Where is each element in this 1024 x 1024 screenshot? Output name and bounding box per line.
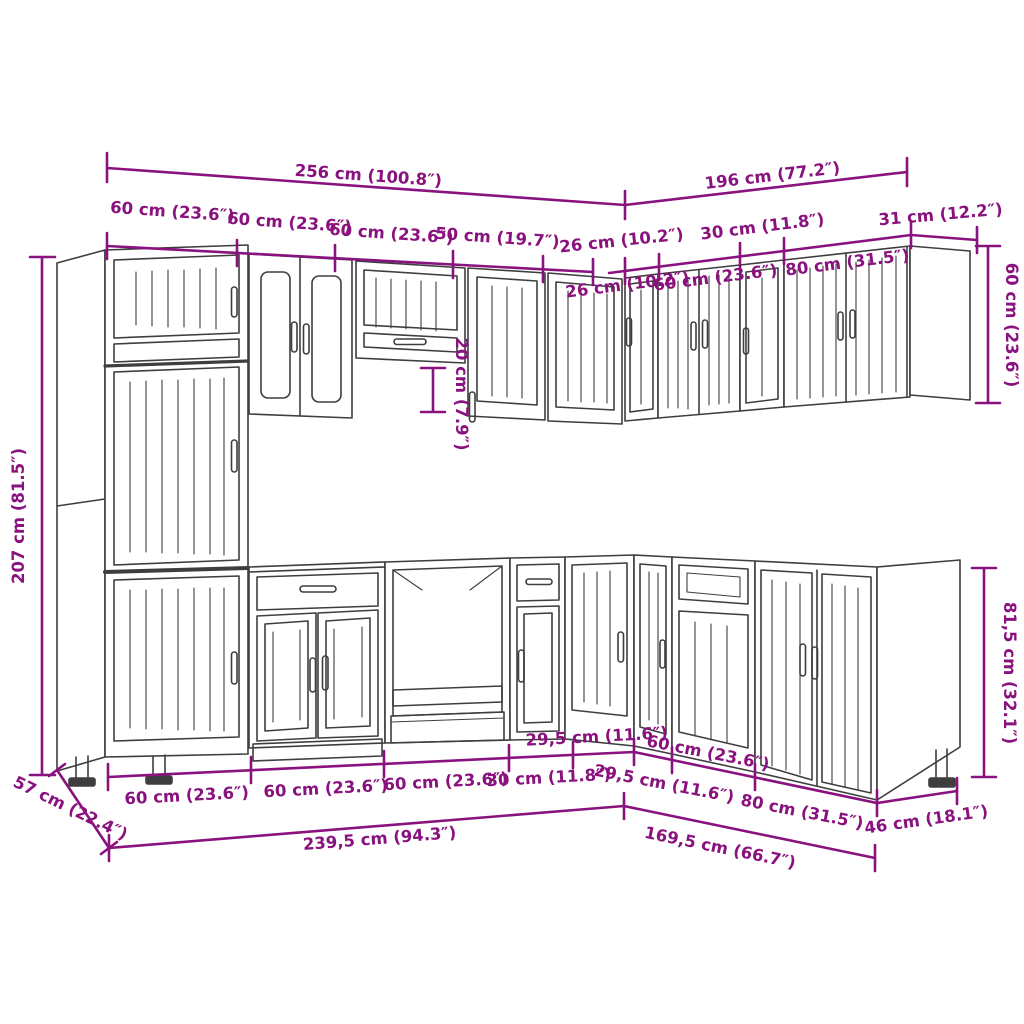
dim-line-wall-height <box>976 246 1000 403</box>
base-cabinet-drawer <box>249 562 385 748</box>
tall-cabinet <box>57 245 248 786</box>
wall-cabinets-left <box>249 254 622 424</box>
dim-label-total-bottom-right: 169,5 cm (66.7″) <box>643 823 798 872</box>
dim-label-tall-height: 207 cm (81.5″) <box>9 448 28 584</box>
dim-label-total-bottom-left: 239,5 cm (94.3″) <box>302 823 457 854</box>
base-cabinet-80 <box>755 561 877 800</box>
dim-label-bottom-60b: 60 cm (23.6″) <box>263 776 388 801</box>
dim-label-top-50: 50 cm (19.7″) <box>435 224 561 252</box>
dim-line-base-height <box>972 568 996 777</box>
dim-label-wall-height: 60 cm (23.6″) <box>1002 263 1021 388</box>
dim-label-base-height: 81,5 cm (32.1″) <box>1000 602 1019 744</box>
dim-label-top-60a: 60 cm (23.6″) <box>110 198 236 226</box>
dim-label-bottom-60a: 60 cm (23.6″) <box>124 783 249 808</box>
base-cabinet-right-foot-plate <box>929 778 955 787</box>
tall-cabinet-front <box>105 245 248 757</box>
dim-label-top-31: 31 cm (12.2″) <box>878 200 1004 230</box>
dim-label-hood-gap: 20 cm (7.9″) <box>452 337 471 450</box>
cabinet-line-art <box>57 245 970 800</box>
dim-line-tall-height <box>30 257 55 775</box>
wall-cabinet-right-side <box>910 246 970 400</box>
dim-label-top-26-left: 26 cm (10.2″) <box>558 225 684 257</box>
tall-cabinet-foot-right-plate <box>146 776 172 784</box>
dim-label-right-depth: 46 cm (18.1″) <box>863 801 989 837</box>
tall-cabinet-foot-left-plate <box>69 778 95 786</box>
tall-cabinet-side <box>57 250 105 771</box>
dim-line-hood-gap <box>421 368 445 412</box>
kitchen-dimension-diagram: 256 cm (100.8″) 196 cm (77.2″) 60 cm (23… <box>0 0 1024 1024</box>
diagram-page: 256 cm (100.8″) 196 cm (77.2″) 60 cm (23… <box>0 0 1024 1024</box>
dim-label-top-30: 30 cm (11.8″) <box>699 210 825 244</box>
